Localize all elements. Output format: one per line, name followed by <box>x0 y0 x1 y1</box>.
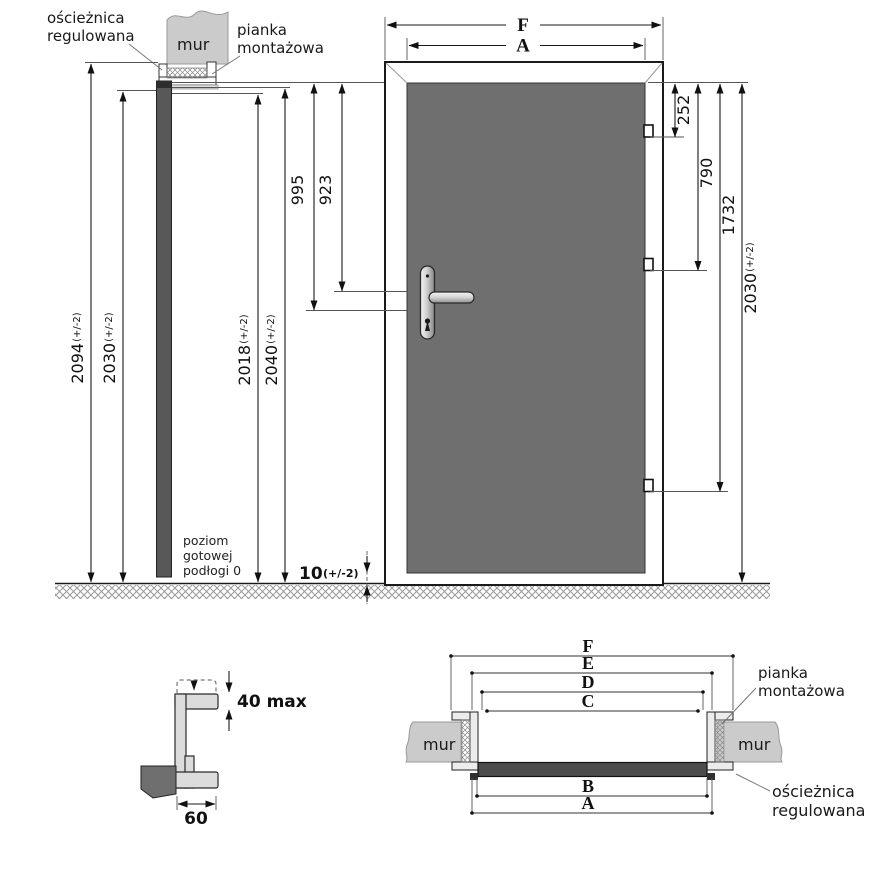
dim-60-label: 60 <box>184 809 208 829</box>
dim-2030-right-label: 2030(+/-2) <box>741 242 760 313</box>
plan-dim-A-label: A <box>582 793 595 813</box>
dim-2040-label: 2040(+/-2) <box>262 314 281 385</box>
mounting-foam-plan-right <box>715 720 724 762</box>
dim-10-label: 10 <box>299 564 323 584</box>
diagram-canvas: ościeżnica regulowana pianka montażowa m… <box>0 0 870 870</box>
profile-body <box>175 694 218 788</box>
side-section-view: ościeżnica regulowana pianka montażowa m… <box>47 9 385 582</box>
foam-plan-leader <box>722 688 756 724</box>
hinge-middle <box>644 259 653 271</box>
foam-plan-label-line2: montażowa <box>758 682 845 700</box>
handle-screw <box>426 274 429 277</box>
door-leaf <box>407 83 645 573</box>
hinge-bottom <box>644 480 653 492</box>
plan-dim-E-label: E <box>582 653 594 673</box>
dim-40max-label: 40 max <box>237 692 307 712</box>
foam-label-line2: montażowa <box>237 39 324 57</box>
dim-2018-label: 2018(+/-2) <box>235 314 254 385</box>
door-leaf-top-cap <box>157 81 172 88</box>
wall-anchor-detail <box>141 766 176 798</box>
front-view: F A 995 923 252 790 1732 2030(+/-2) 10 (… <box>288 15 760 604</box>
frame-plan-label-line2: regulowana <box>772 801 865 820</box>
frame-plan-label-line1: ościeżnica <box>772 782 855 801</box>
floor-level-label-line2: gotowej <box>183 548 233 563</box>
plan-section-view: mur mur <box>406 636 865 820</box>
dim-A-label: A <box>516 36 530 57</box>
foam-label-line1: pianka <box>237 21 287 39</box>
frame-plan-leader <box>736 774 770 791</box>
adjustable-extension-dashed <box>177 680 216 693</box>
dim-1732-label: 1732 <box>719 195 738 236</box>
dim-10-tolerance: (+/-2) <box>323 567 359 580</box>
wall-label: mur <box>177 35 210 54</box>
floor-level-label-line1: poziom <box>183 533 228 548</box>
wall-label-left: mur <box>423 735 456 754</box>
rebate-right <box>707 773 715 780</box>
dim-2094-label: 2094(+/-2) <box>68 312 87 383</box>
frame-label-line2: regulowana <box>47 27 135 45</box>
frame-label-line1: ościeżnica <box>47 9 125 27</box>
frame-profile-detail: 40 max 60 <box>141 671 307 829</box>
dim-995-label: 995 <box>288 175 307 206</box>
dim-252-label: 252 <box>674 95 693 126</box>
frame-label-leader <box>129 44 162 70</box>
plan-dim-C-label: C <box>582 691 595 711</box>
dim-790-label: 790 <box>697 158 716 189</box>
mounting-foam-plan-left <box>461 720 470 762</box>
dim-F-label: F <box>517 15 529 36</box>
wall-label-right: mur <box>738 735 771 754</box>
dim-2030-left-label: 2030(+/-2) <box>100 312 119 383</box>
door-technical-diagram: ościeżnica regulowana pianka montażowa m… <box>0 0 870 870</box>
handle-lever <box>429 292 474 303</box>
door-leaf-section <box>157 81 172 577</box>
mounting-foam-section <box>167 68 207 78</box>
dim-923-label: 923 <box>316 175 335 206</box>
door-leaf-plan <box>478 763 707 777</box>
floor-hatch <box>55 585 770 599</box>
foam-plan-label-line1: pianka <box>758 664 808 682</box>
floor-level-label-line3: podłogi 0 <box>183 563 241 578</box>
hinge-top <box>644 125 653 137</box>
plan-dim-D-label: D <box>582 672 595 692</box>
